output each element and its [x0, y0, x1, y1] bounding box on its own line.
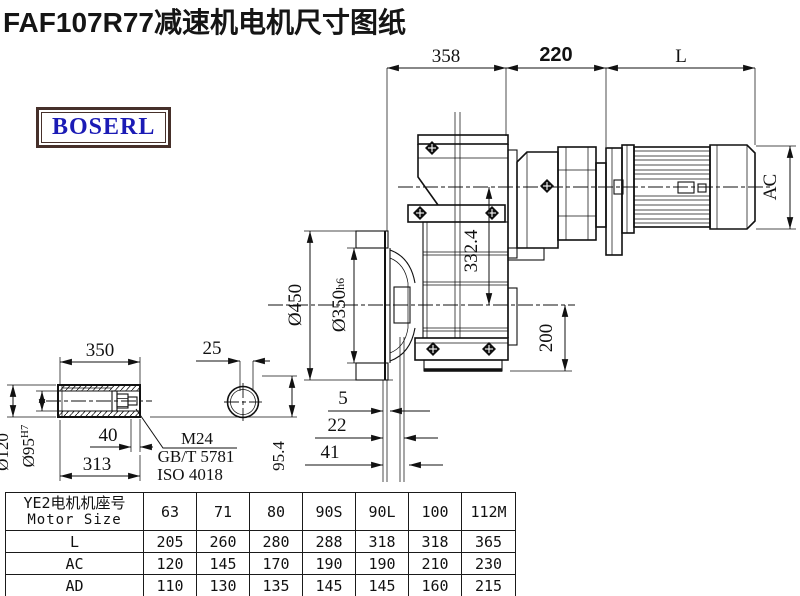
cell: 215: [462, 575, 516, 596]
header-col: 90S: [303, 493, 356, 531]
row-label: L: [6, 531, 144, 553]
dim-off22: 22: [328, 415, 347, 436]
dim-off5: 5: [338, 388, 348, 409]
table-row-AC: AC 120 145 170 190 190 210 230: [6, 553, 516, 575]
label-bolt: M24: [181, 429, 214, 448]
cell: 210: [409, 553, 462, 575]
cell: 205: [144, 531, 197, 553]
label-std-gb: GB/T 5781: [158, 447, 235, 466]
dim-base-height: 200: [536, 324, 557, 353]
header-col: 63: [144, 493, 197, 531]
header-motor-size-cn: YE2电机机座号: [6, 494, 143, 512]
header-col: 112M: [462, 493, 516, 531]
cell: 190: [303, 553, 356, 575]
dim-center-height: 332.4: [461, 229, 482, 272]
header-col: 71: [197, 493, 250, 531]
cell: 160: [409, 575, 462, 596]
cell: 120: [144, 553, 197, 575]
row-label: AD: [6, 575, 144, 596]
dim-ac: AC: [760, 174, 781, 200]
hollow-shaft-view: 350 40 313 Ø120 Ø95H7: [0, 338, 297, 484]
cell: 135: [250, 575, 303, 596]
cell: 318: [409, 531, 462, 553]
dim-shaft-len: 350: [86, 340, 115, 361]
main-view-dimensions: Ø450 Ø350h6 332.4 200 AC 5 22: [285, 146, 796, 465]
label-std-iso: ISO 4018: [157, 465, 223, 484]
cell: 190: [356, 553, 409, 575]
dim-pilot: Ø350h6: [329, 278, 350, 332]
motor-size-table: YE2电机机座号 Motor Size 63 71 80 90S 90L 100…: [5, 492, 516, 596]
dim-off41: 41: [321, 442, 340, 463]
table-row-L: L 205 260 280 288 318 318 365: [6, 531, 516, 553]
top-dimensions: 358 220 L: [387, 44, 755, 231]
cell: 170: [250, 553, 303, 575]
header-col: 90L: [356, 493, 409, 531]
drawing-sheet: FAF107R77减速机电机尺寸图纸 BOSERL: [0, 0, 800, 596]
dim-shaft-od: Ø120: [0, 433, 12, 471]
cell: 145: [303, 575, 356, 596]
header-motor-size-en: Motor Size: [6, 512, 143, 529]
header-col: 80: [250, 493, 303, 531]
dim-key-height: 95.4: [269, 441, 288, 471]
dim-depth: 40: [99, 425, 118, 446]
cell: 145: [197, 553, 250, 575]
cell: 365: [462, 531, 516, 553]
table-header-row: YE2电机机座号 Motor Size 63 71 80 90S 90L 100…: [6, 493, 516, 531]
dim-358: 358: [432, 46, 461, 67]
header-col: 100: [409, 493, 462, 531]
cell: 230: [462, 553, 516, 575]
cell: 260: [197, 531, 250, 553]
dim-L: L: [675, 46, 687, 67]
output-flange: [356, 231, 415, 482]
motor: [622, 145, 755, 233]
row-label: AC: [6, 553, 144, 575]
cell: 110: [144, 575, 197, 596]
cell: 130: [197, 575, 250, 596]
dim-key-width: 25: [203, 338, 222, 359]
cell: 145: [356, 575, 409, 596]
dim-bore-depth: 313: [83, 454, 112, 475]
motor-adapter: [508, 147, 623, 260]
dim-flange-od: Ø450: [285, 284, 306, 326]
table-row-AD: AD 110 130 135 145 145 160 215: [6, 575, 516, 596]
cell: 288: [303, 531, 356, 553]
header-motor-size: YE2电机机座号 Motor Size: [6, 493, 144, 531]
cell: 280: [250, 531, 303, 553]
cell: 318: [356, 531, 409, 553]
dim-220: 220: [539, 44, 572, 66]
dim-bore: Ø95H7: [19, 424, 38, 467]
